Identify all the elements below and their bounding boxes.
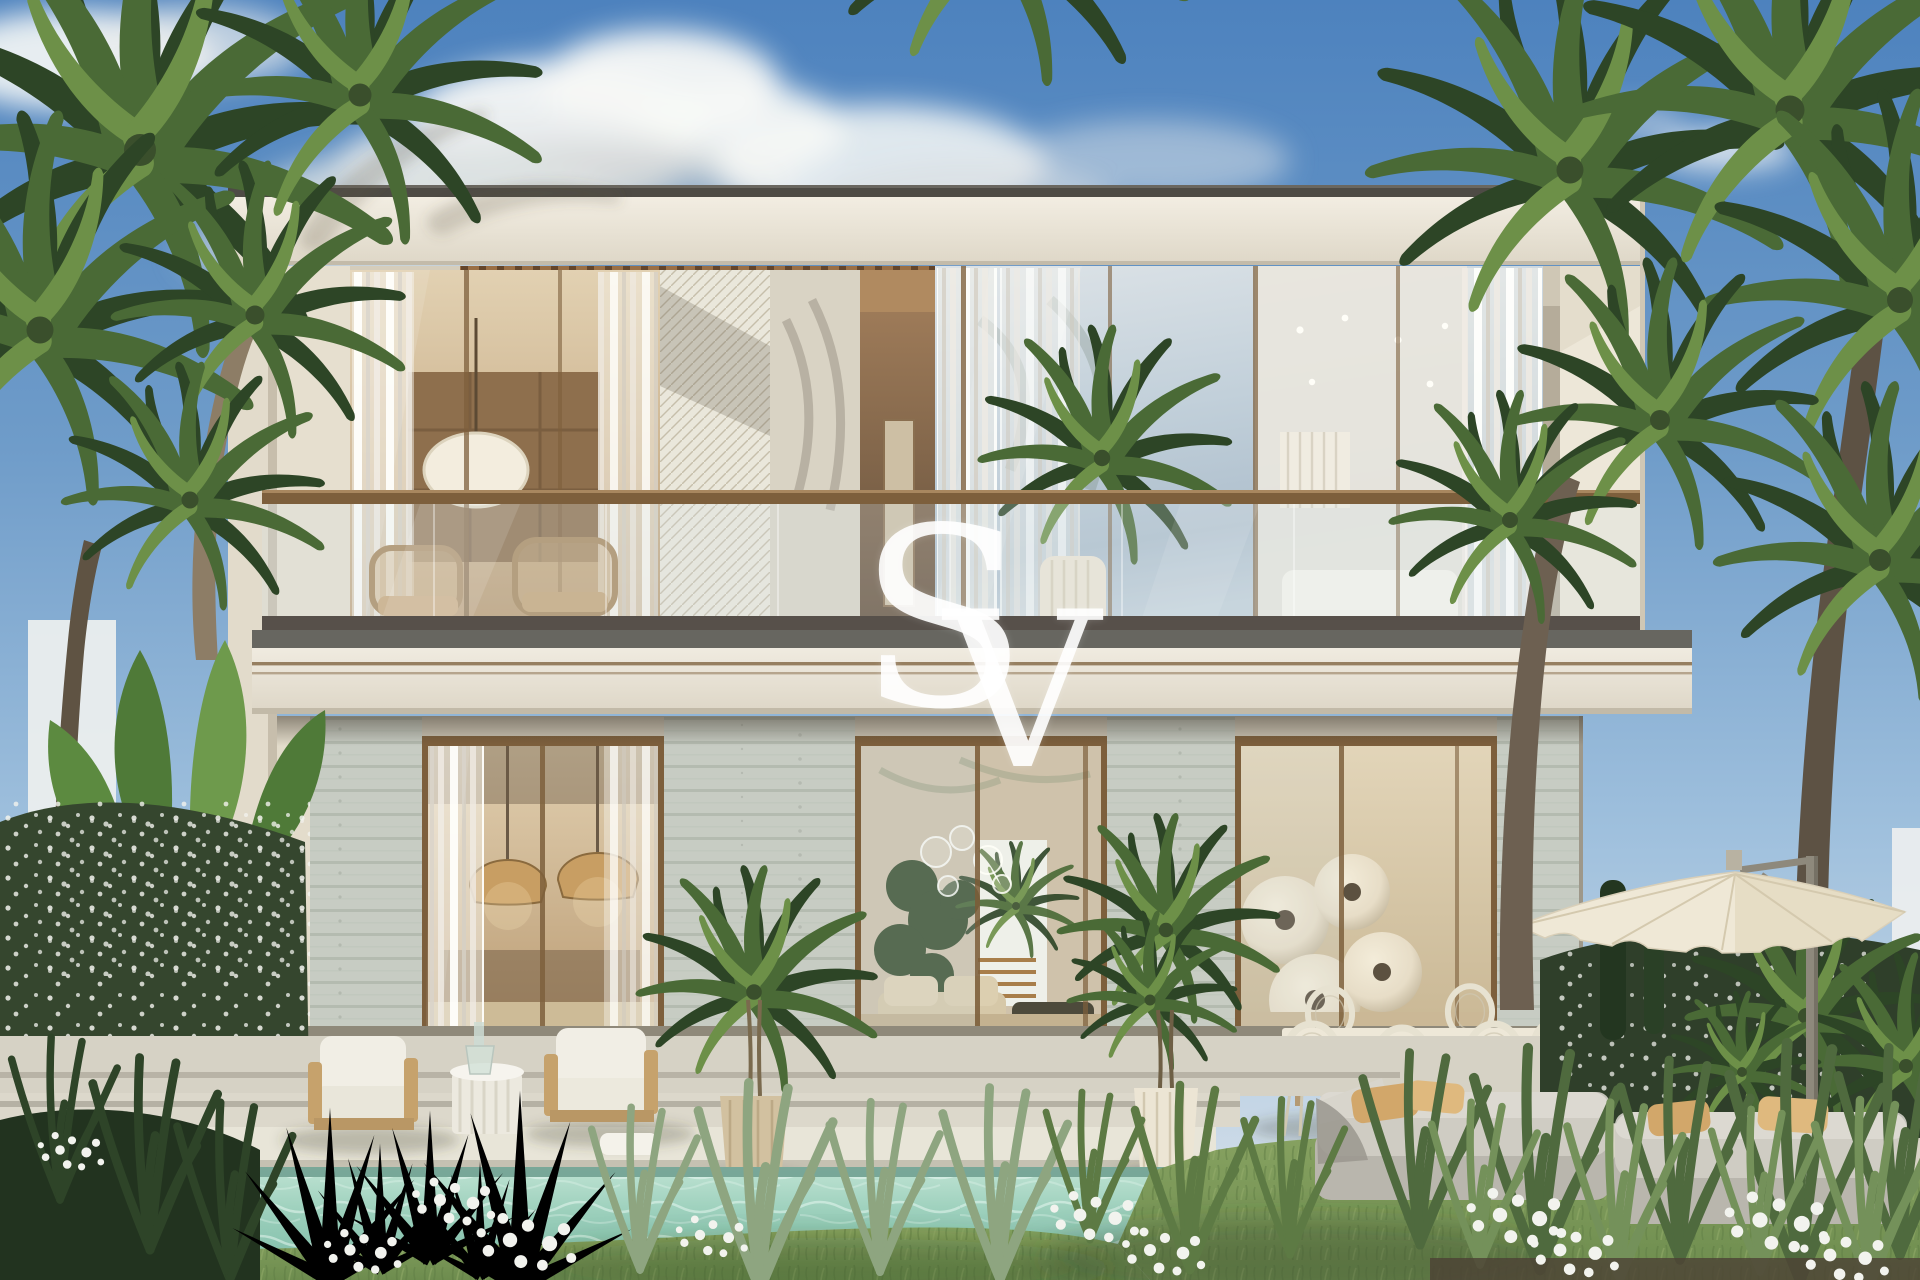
armchair xyxy=(544,1028,658,1122)
ground-floor xyxy=(277,716,1583,1064)
villa-building xyxy=(228,106,1692,1064)
stone-pier xyxy=(310,716,422,1036)
ground-doors-dining xyxy=(1235,736,1497,1046)
ground-window-living xyxy=(422,736,664,1036)
villa-exterior-render: S V xyxy=(0,0,1920,1280)
balcony-slab xyxy=(252,630,1692,714)
soil-strip xyxy=(1430,1258,1920,1280)
render-scene xyxy=(0,0,1920,1280)
ground-doors-center xyxy=(855,736,1107,1064)
armchair xyxy=(308,1036,418,1130)
